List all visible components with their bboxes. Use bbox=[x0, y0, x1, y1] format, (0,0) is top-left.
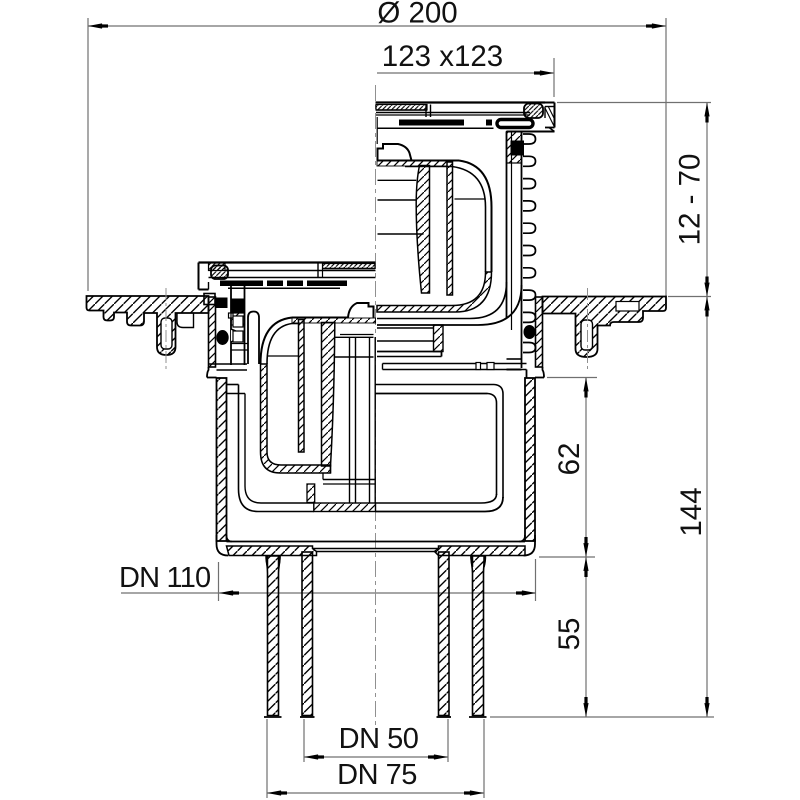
svg-text:DN 110: DN 110 bbox=[119, 562, 210, 594]
svg-text:Ø 200: Ø 200 bbox=[377, 0, 457, 30]
svg-text:DN 50: DN 50 bbox=[339, 723, 419, 755]
svg-text:12 - 70: 12 - 70 bbox=[674, 154, 707, 246]
svg-text:DN 75: DN 75 bbox=[337, 759, 417, 791]
svg-text:55: 55 bbox=[553, 618, 586, 651]
svg-text:62: 62 bbox=[553, 443, 586, 476]
svg-text:144: 144 bbox=[675, 487, 708, 536]
svg-text:123 x123: 123 x123 bbox=[382, 40, 503, 73]
